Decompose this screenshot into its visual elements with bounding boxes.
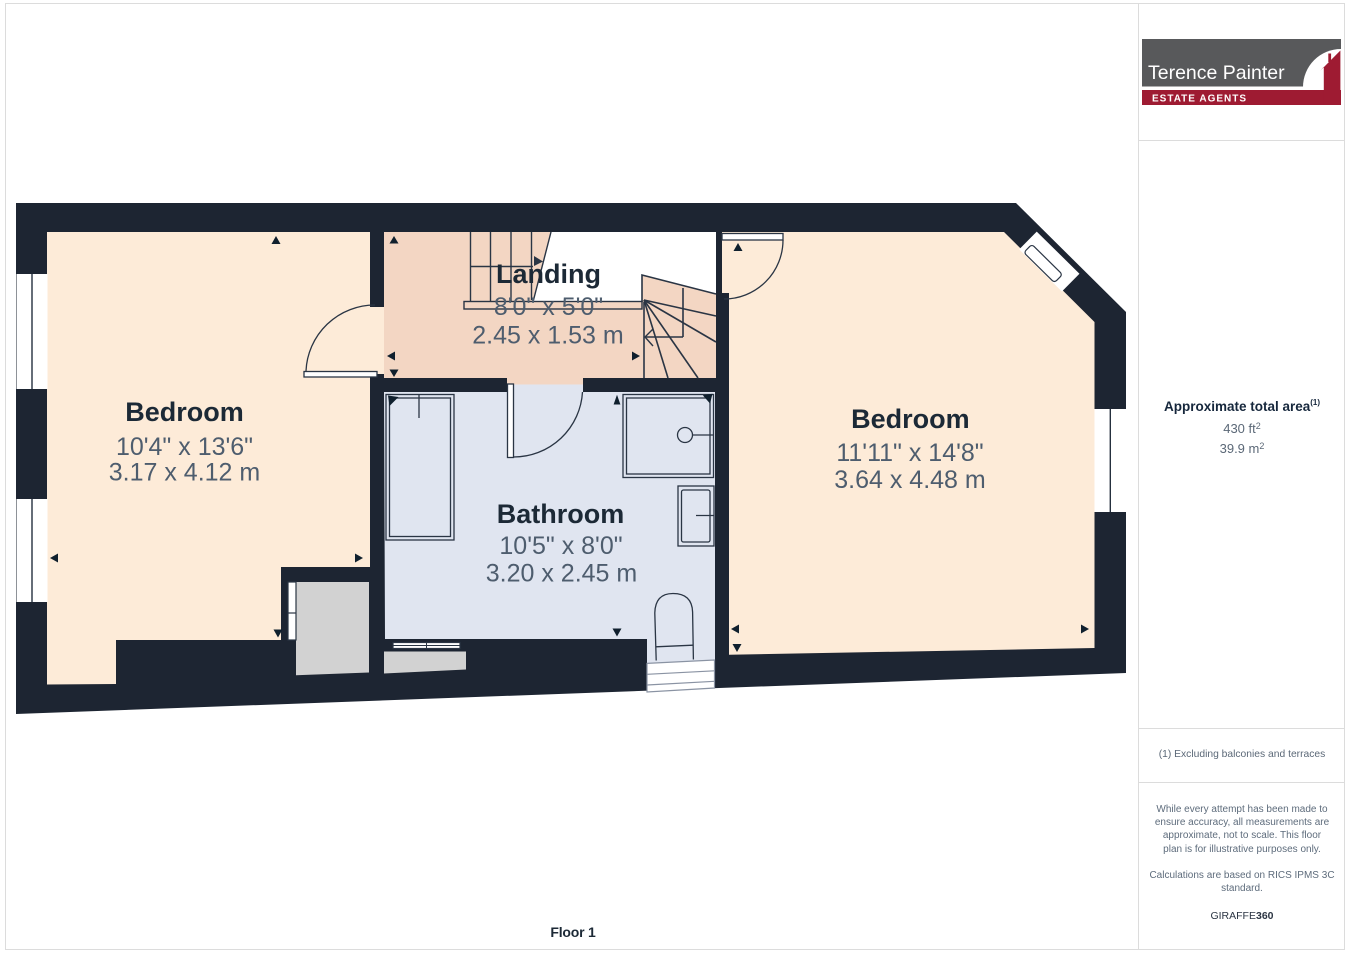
svg-text:2.45 x 1.53 m: 2.45 x 1.53 m	[472, 322, 623, 350]
svg-text:3.17 x 4.12 m: 3.17 x 4.12 m	[109, 459, 260, 487]
svg-text:Bedroom: Bedroom	[125, 397, 244, 427]
svg-text:11'11" x 14'8": 11'11" x 14'8"	[836, 439, 983, 467]
svg-text:Bathroom: Bathroom	[497, 499, 625, 529]
svg-text:ESTATE AGENTS: ESTATE AGENTS	[1152, 94, 1247, 105]
svg-text:Landing: Landing	[496, 259, 601, 289]
svg-text:10'5" x 8'0": 10'5" x 8'0"	[499, 532, 622, 560]
svg-text:10'4" x 13'6": 10'4" x 13'6"	[116, 433, 253, 461]
svg-text:3.64 x 4.48 m: 3.64 x 4.48 m	[834, 466, 985, 494]
svg-text:Terence Painter: Terence Painter	[1148, 62, 1285, 84]
svg-text:3.20 x 2.45 m: 3.20 x 2.45 m	[486, 560, 637, 588]
svg-text:8'0" x 5'0": 8'0" x 5'0"	[494, 293, 603, 321]
svg-text:Bedroom: Bedroom	[851, 404, 970, 434]
